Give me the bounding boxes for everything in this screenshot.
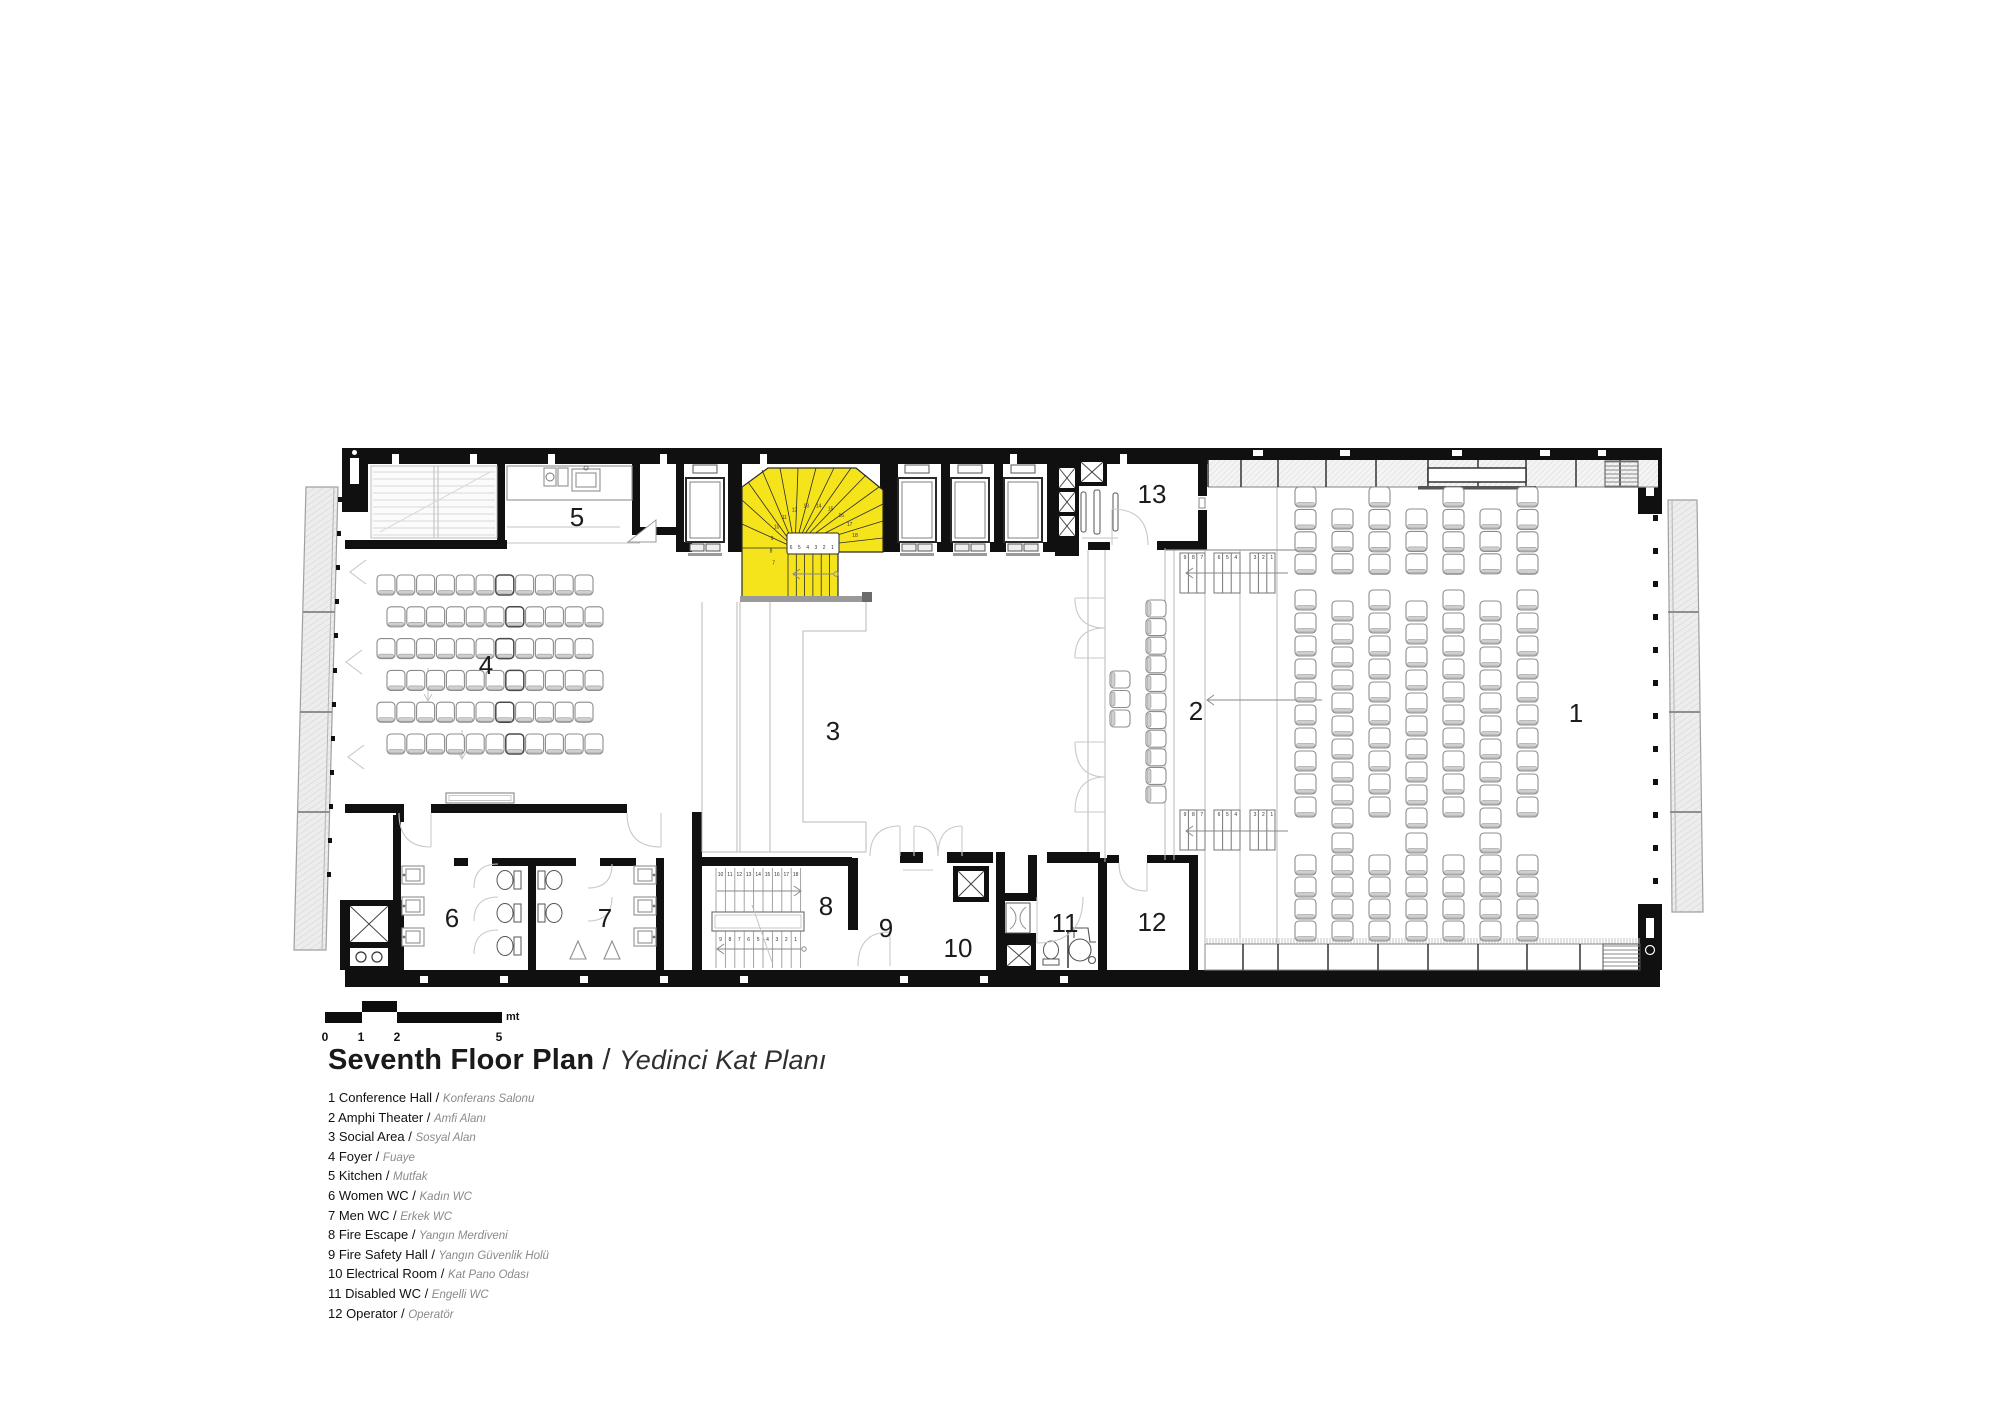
chair <box>1443 509 1464 529</box>
legend-item-6: 6 Women WC / Kadın WC <box>328 1187 848 1207</box>
step-number: 3 <box>1254 555 1257 561</box>
chair <box>387 607 405 627</box>
chair <box>1332 601 1353 621</box>
chair <box>1406 921 1427 941</box>
step-number: 7 <box>1200 812 1203 818</box>
chair <box>1517 728 1538 748</box>
step-number: 6 <box>790 545 793 551</box>
chair <box>1295 855 1316 875</box>
page-title: Seventh Floor Plan / Yedinci Kat Planı <box>328 1044 848 1077</box>
room-label-fire-safety-hall: 9 <box>879 913 893 943</box>
chair <box>1443 899 1464 919</box>
chair <box>1369 774 1390 794</box>
chair <box>526 607 544 627</box>
chair <box>1517 487 1538 507</box>
chair <box>1517 705 1538 725</box>
chair <box>1517 899 1538 919</box>
chair <box>1295 705 1316 725</box>
chair <box>1369 532 1390 552</box>
chair <box>1369 728 1390 748</box>
chair <box>1369 554 1390 574</box>
chair <box>1146 600 1166 617</box>
step-number: 7 <box>1200 555 1203 561</box>
step-number: 2 <box>785 937 788 943</box>
step-number: 18 <box>793 872 799 878</box>
chair <box>1443 532 1464 552</box>
chair <box>1480 921 1501 941</box>
floor-plan-page: 12345678910111213 7891011121314151617186… <box>0 0 2000 1414</box>
step-number: 8 <box>729 937 732 943</box>
chair <box>1406 855 1427 875</box>
step-number: 17 <box>847 522 853 528</box>
title-tr: Yedinci Kat Planı <box>619 1045 827 1075</box>
step-number: 5 <box>1226 812 1229 818</box>
step-number: 1 <box>1270 555 1273 561</box>
chair <box>1406 785 1427 805</box>
chair <box>1480 554 1501 574</box>
legend-item-11: 11 Disabled WC / Engelli WC <box>328 1285 848 1305</box>
chair <box>496 639 514 659</box>
scale-unit-label: mt <box>506 1011 519 1023</box>
chair <box>1406 762 1427 782</box>
chair <box>436 702 454 722</box>
chair <box>1480 531 1501 551</box>
legend-item-5: 5 Kitchen / Mutfak <box>328 1167 848 1187</box>
chair <box>1110 710 1130 727</box>
stage-screen <box>1418 468 1536 490</box>
chair <box>407 734 425 754</box>
chair <box>1369 797 1390 817</box>
chair <box>1480 762 1501 782</box>
chair <box>1295 921 1316 941</box>
chair <box>1517 613 1538 633</box>
scale-bar-segment <box>362 1001 397 1012</box>
chair <box>1517 554 1538 574</box>
chair <box>575 702 593 722</box>
step-number: 10 <box>774 525 780 531</box>
chair <box>1332 554 1353 574</box>
chair <box>585 670 603 690</box>
chair <box>1295 659 1316 679</box>
legend-item-8: 8 Fire Escape / Yangın Merdiveni <box>328 1226 848 1246</box>
step-number: 5 <box>798 545 801 551</box>
chair <box>446 670 464 690</box>
chair <box>1332 531 1353 551</box>
chair <box>1332 877 1353 897</box>
chair <box>1443 751 1464 771</box>
chair <box>1295 797 1316 817</box>
title-separator: / <box>594 1044 619 1076</box>
legend-item-9: 9 Fire Safety Hall / Yangın Güvenlik Hol… <box>328 1246 848 1266</box>
chair <box>1369 877 1390 897</box>
chair <box>1295 636 1316 656</box>
chair <box>496 575 514 595</box>
chair <box>1295 554 1316 574</box>
legend-item-7: 7 Men WC / Erkek WC <box>328 1207 848 1227</box>
room-label-conference-hall: 1 <box>1569 698 1583 728</box>
chair <box>575 639 593 659</box>
chair <box>1332 899 1353 919</box>
chair <box>1146 619 1166 636</box>
chair <box>1332 716 1353 736</box>
chair <box>1295 509 1316 529</box>
chair <box>476 575 494 595</box>
chair <box>1369 682 1390 702</box>
chair <box>1480 670 1501 690</box>
chair <box>377 575 395 595</box>
chair <box>545 670 563 690</box>
sink <box>634 866 656 946</box>
chair <box>407 607 425 627</box>
step-number: 12 <box>792 508 798 514</box>
step-number: 15 <box>765 872 771 878</box>
chair <box>1295 613 1316 633</box>
chair <box>1295 590 1316 610</box>
chair <box>1517 797 1538 817</box>
chair <box>1480 855 1501 875</box>
step-number: 7 <box>772 561 775 567</box>
chair <box>387 734 405 754</box>
chair <box>565 670 583 690</box>
chair <box>1406 624 1427 644</box>
toilet <box>538 871 562 923</box>
chair <box>1480 899 1501 919</box>
chair <box>1480 716 1501 736</box>
chair <box>1443 705 1464 725</box>
chair <box>1295 774 1316 794</box>
chair <box>1517 659 1538 679</box>
step-number: 9 <box>719 937 722 943</box>
chair <box>1517 636 1538 656</box>
step-number: 1 <box>831 545 834 551</box>
chair <box>1295 728 1316 748</box>
elevator-car <box>898 465 936 556</box>
step-number: 6 <box>1218 555 1221 561</box>
chair <box>1406 601 1427 621</box>
legend-item-3: 3 Social Area / Sosyal Alan <box>328 1128 848 1148</box>
chair <box>1369 636 1390 656</box>
step-number: 2 <box>823 545 826 551</box>
step-number: 15 <box>828 506 834 512</box>
chair <box>1332 647 1353 667</box>
chair <box>1480 785 1501 805</box>
chair <box>1369 855 1390 875</box>
chair <box>1146 674 1166 691</box>
chair <box>1332 855 1353 875</box>
chair <box>565 734 583 754</box>
chair <box>397 639 415 659</box>
step-number: 13 <box>746 872 752 878</box>
chair <box>1443 659 1464 679</box>
chair <box>1369 487 1390 507</box>
chair <box>1295 487 1316 507</box>
legend: 1 Conference Hall / Konferans Salonu2 Am… <box>328 1089 848 1324</box>
chair <box>545 734 563 754</box>
step-number: 3 <box>1254 812 1257 818</box>
step-number: 2 <box>1262 555 1265 561</box>
step-number: 9 <box>1184 555 1187 561</box>
chair <box>575 575 593 595</box>
chair <box>436 639 454 659</box>
step-number: 12 <box>737 872 743 878</box>
chair <box>585 607 603 627</box>
room-label-operator: 12 <box>1138 907 1167 937</box>
chair <box>555 639 573 659</box>
chair <box>1406 716 1427 736</box>
chair <box>496 702 514 722</box>
step-number: 2 <box>1262 812 1265 818</box>
chair <box>1443 590 1464 610</box>
chair <box>436 575 454 595</box>
chair <box>1146 712 1166 729</box>
hall-window-bands <box>1205 460 1658 970</box>
chair <box>1443 774 1464 794</box>
step-number: 13 <box>803 504 809 510</box>
chair <box>1480 509 1501 529</box>
chair <box>427 607 445 627</box>
chair <box>1406 693 1427 713</box>
chair <box>555 575 573 595</box>
chair <box>1480 647 1501 667</box>
chair <box>1146 749 1166 766</box>
chair <box>1517 682 1538 702</box>
chair <box>1406 509 1427 529</box>
chair <box>1295 532 1316 552</box>
chair <box>1369 613 1390 633</box>
chair <box>1517 921 1538 941</box>
chair <box>1480 739 1501 759</box>
chair <box>456 575 474 595</box>
step-number: 1 <box>794 937 797 943</box>
step-number: 6 <box>747 937 750 943</box>
chair <box>1480 693 1501 713</box>
chair <box>1443 797 1464 817</box>
chair <box>1332 739 1353 759</box>
chair <box>1517 855 1538 875</box>
chair <box>1332 785 1353 805</box>
chair <box>535 639 553 659</box>
chair <box>1406 899 1427 919</box>
chair <box>1517 590 1538 610</box>
chair <box>1369 590 1390 610</box>
chair <box>1406 554 1427 574</box>
chair <box>1406 877 1427 897</box>
legend-item-12: 12 Operator / Operatör <box>328 1305 848 1325</box>
room-label-social-area: 3 <box>826 716 840 746</box>
title-en: Seventh Floor Plan <box>328 1044 594 1076</box>
chair <box>397 575 415 595</box>
chair <box>407 670 425 690</box>
chair <box>516 575 534 595</box>
chair <box>377 639 395 659</box>
step-number: 4 <box>806 545 809 551</box>
scale-tick-5: 5 <box>496 1030 503 1044</box>
chair <box>476 702 494 722</box>
chair <box>1295 899 1316 919</box>
chair <box>466 607 484 627</box>
room-label-disabled-wc: 11 <box>1052 908 1079 938</box>
legend-item-1: 1 Conference Hall / Konferans Salonu <box>328 1089 848 1109</box>
chair <box>1146 786 1166 803</box>
chair <box>1480 808 1501 828</box>
chair <box>506 734 524 754</box>
chair <box>1146 693 1166 710</box>
chair <box>1110 691 1130 708</box>
chair <box>1443 613 1464 633</box>
room-label-fire-escape: 8 <box>819 891 833 921</box>
chair <box>1406 670 1427 690</box>
step-number: 9 <box>1184 812 1187 818</box>
chair <box>565 607 583 627</box>
chair <box>1332 833 1353 853</box>
step-number: 9 <box>771 536 774 542</box>
chair <box>1146 730 1166 747</box>
chair <box>1332 509 1353 529</box>
foyer-podium <box>446 793 514 803</box>
chair <box>545 607 563 627</box>
step-number: 11 <box>782 515 787 521</box>
chair <box>417 702 435 722</box>
step-number: 1 <box>1270 812 1273 818</box>
chair <box>1406 739 1427 759</box>
chair <box>417 639 435 659</box>
chair <box>516 639 534 659</box>
chair <box>535 575 553 595</box>
chair <box>1480 833 1501 853</box>
chair <box>1443 554 1464 574</box>
step-number: 14 <box>755 872 761 878</box>
chair <box>1406 647 1427 667</box>
chair <box>377 702 395 722</box>
step-number: 5 <box>1226 555 1229 561</box>
chair <box>516 702 534 722</box>
step-number: 10 <box>718 872 724 878</box>
chair <box>417 575 435 595</box>
chair <box>526 734 544 754</box>
step-number: 5 <box>757 937 760 943</box>
chair <box>486 734 504 754</box>
right-glass-facade <box>1653 500 1703 912</box>
chair <box>1332 762 1353 782</box>
chair <box>1332 670 1353 690</box>
service-stair <box>371 466 497 538</box>
chair <box>1295 877 1316 897</box>
chair <box>1443 855 1464 875</box>
step-number: 4 <box>766 937 769 943</box>
floor-plan-drawing: 12345678910111213 7891011121314151617186… <box>0 0 2000 1414</box>
chair <box>1443 487 1464 507</box>
legend-item-2: 2 Amphi Theater / Amfi Alanı <box>328 1109 848 1129</box>
elevator-car <box>686 465 724 556</box>
chair <box>555 702 573 722</box>
chair <box>456 639 474 659</box>
chair <box>427 734 445 754</box>
step-number: 7 <box>738 937 741 943</box>
chair <box>1369 899 1390 919</box>
chair <box>506 670 524 690</box>
step-number: 8 <box>1192 812 1195 818</box>
fire-escape-stair <box>712 868 806 968</box>
scale-bar-segment <box>325 1012 362 1023</box>
chair <box>1369 921 1390 941</box>
chair <box>1332 921 1353 941</box>
room-label-electrical-room: 10 <box>944 933 973 963</box>
chair <box>466 734 484 754</box>
sink <box>402 866 424 946</box>
chair <box>456 702 474 722</box>
elevator-car <box>951 465 989 556</box>
step-number: 3 <box>815 545 818 551</box>
chair <box>1517 877 1538 897</box>
step-number: 4 <box>1234 555 1237 561</box>
chair <box>1146 637 1166 654</box>
chair <box>1480 624 1501 644</box>
step-number: 6 <box>1218 812 1221 818</box>
legend-item-10: 10 Electrical Room / Kat Pano Odası <box>328 1265 848 1285</box>
chair <box>1517 774 1538 794</box>
chair <box>486 607 504 627</box>
chair <box>585 734 603 754</box>
chair <box>1406 833 1427 853</box>
chair <box>1369 751 1390 771</box>
chair <box>1332 624 1353 644</box>
urinal <box>570 941 620 959</box>
step-number: 11 <box>727 872 732 878</box>
chair <box>1517 532 1538 552</box>
chair <box>1369 705 1390 725</box>
chair <box>1443 636 1464 656</box>
chair <box>1406 531 1427 551</box>
chair <box>1443 877 1464 897</box>
step-number: 16 <box>839 513 845 519</box>
chair <box>1146 656 1166 673</box>
scale-tick-0: 0 <box>322 1030 329 1044</box>
step-number: 17 <box>784 872 790 878</box>
step-number: 16 <box>774 872 780 878</box>
chair <box>1480 877 1501 897</box>
chair <box>1517 509 1538 529</box>
chair <box>1517 751 1538 771</box>
chair <box>1369 659 1390 679</box>
chair <box>427 670 445 690</box>
legend-item-4: 4 Foyer / Fuaye <box>328 1148 848 1168</box>
chair <box>1480 601 1501 621</box>
main-stair <box>740 468 883 602</box>
chair <box>1332 693 1353 713</box>
toilet <box>497 871 521 956</box>
step-number: 3 <box>776 937 779 943</box>
room-label-room-13: 13 <box>1138 479 1167 509</box>
step-number: 8 <box>770 549 773 555</box>
room-label-foyer: 4 <box>479 650 493 680</box>
scale-bar: mt 0125 <box>325 1001 545 1043</box>
room-label-amphi-theater: 2 <box>1189 696 1203 726</box>
room-label-men-wc: 7 <box>598 903 612 933</box>
left-glass-facade <box>294 487 366 950</box>
scale-tick-2: 2 <box>394 1030 401 1044</box>
chair <box>1443 728 1464 748</box>
chair <box>1443 682 1464 702</box>
chair <box>1406 808 1427 828</box>
chair <box>1443 921 1464 941</box>
chair <box>446 734 464 754</box>
chair <box>506 607 524 627</box>
scale-tick-1: 1 <box>358 1030 365 1044</box>
room-label-women-wc: 6 <box>445 903 459 933</box>
room-label-kitchen: 5 <box>570 502 584 532</box>
step-number: 8 <box>1192 555 1195 561</box>
chair <box>1369 509 1390 529</box>
